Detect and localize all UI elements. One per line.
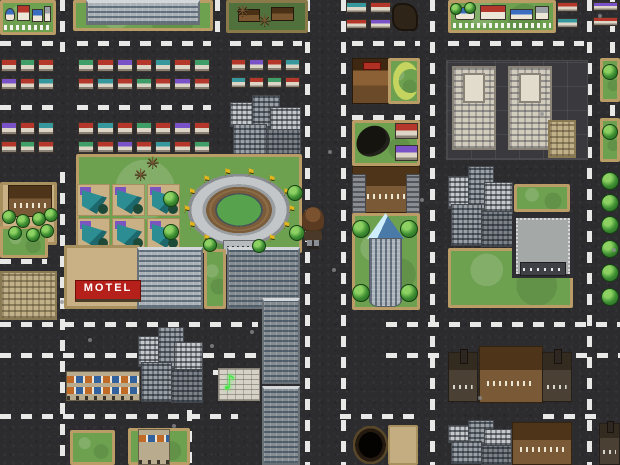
house	[97, 141, 113, 154]
city-cluster-east	[448, 166, 514, 248]
tree	[464, 2, 476, 14]
church-east	[542, 352, 572, 402]
city-building	[266, 129, 301, 156]
house	[78, 78, 94, 91]
road-speckle	[478, 396, 482, 400]
tree	[44, 208, 58, 222]
house	[174, 122, 190, 135]
awning-shops	[66, 371, 140, 401]
house	[97, 78, 113, 91]
house	[249, 59, 264, 71]
sand-patch	[388, 425, 418, 465]
house	[194, 141, 210, 154]
house	[194, 59, 210, 72]
house-row-tr3	[592, 0, 620, 30]
suburb-house-tile	[112, 184, 145, 216]
flag-icon: ⚑	[188, 221, 196, 230]
picket-fence	[4, 25, 52, 30]
dead-tree-icon: ✳	[146, 156, 159, 172]
tree	[602, 64, 618, 80]
village-house	[480, 5, 507, 20]
house	[231, 77, 246, 89]
office-lawn-strip	[204, 249, 226, 309]
twin-tower-west	[452, 66, 496, 150]
house	[346, 2, 367, 13]
house	[557, 18, 578, 28]
house	[117, 78, 133, 91]
pit-hole	[353, 426, 388, 464]
house	[174, 59, 190, 72]
manor-south-2	[512, 422, 572, 465]
tree	[601, 264, 619, 282]
house	[249, 77, 264, 89]
dead-tree-icon: ✳	[134, 168, 147, 184]
house	[155, 122, 171, 135]
motel-sign: MOTEL	[75, 280, 141, 302]
flag-icon: ⚑	[224, 168, 232, 177]
tree	[163, 224, 179, 240]
house	[1, 141, 17, 154]
house	[285, 77, 300, 89]
grass-patch-ne	[514, 184, 570, 212]
road-lane-marking	[60, 0, 65, 52]
house-row-1	[0, 57, 56, 94]
house-row-3	[230, 57, 302, 92]
church-edge	[599, 423, 620, 465]
road-lane-marking	[340, 414, 417, 419]
road-lane-marking	[386, 322, 620, 327]
tower-mid	[262, 298, 300, 384]
house	[155, 141, 171, 154]
road-lane-marking	[77, 41, 211, 46]
tree	[601, 288, 619, 306]
tree	[8, 226, 22, 240]
shop-south	[138, 429, 170, 465]
city-building	[481, 445, 512, 465]
house	[370, 2, 391, 13]
player-hair	[302, 207, 324, 233]
suburb-house-tile	[77, 184, 110, 216]
house	[346, 19, 367, 30]
road-lane-marking	[576, 353, 620, 358]
road-speckle	[60, 300, 64, 304]
apartments-left	[0, 271, 57, 320]
flag-icon: ⚑	[268, 234, 276, 243]
road-lane-marking	[448, 41, 584, 46]
twin-tower-east	[508, 66, 552, 150]
tree	[163, 191, 179, 207]
city-building	[171, 369, 203, 403]
road-lane-marking	[0, 322, 258, 327]
road-lane-marking	[0, 259, 47, 264]
house	[155, 78, 171, 91]
city-cluster-west	[138, 327, 204, 404]
office-building-top	[86, 0, 200, 25]
village-house	[32, 9, 43, 21]
house	[194, 122, 210, 135]
house	[38, 78, 54, 91]
player-character	[301, 207, 325, 249]
shrub	[133, 204, 143, 214]
city-cluster-south	[448, 420, 513, 465]
village-house	[44, 6, 51, 22]
tree	[40, 224, 54, 238]
tree	[252, 239, 266, 253]
house	[78, 141, 94, 154]
house-pair-red	[394, 121, 420, 165]
road-lane-marking	[0, 414, 238, 419]
grass-square-sw1	[70, 430, 115, 465]
tree	[601, 216, 619, 234]
road-lane-marking	[0, 41, 56, 46]
house	[267, 59, 282, 71]
road-speckle	[332, 268, 336, 272]
palace-hotel	[352, 166, 420, 213]
house	[285, 59, 300, 71]
house-row-2	[77, 57, 212, 94]
tree	[203, 238, 217, 252]
map-viewport[interactable]: MOTEL ⚑⚑⚑⚑⚑⚑⚑⚑⚑⚑⚑⚑⚑⚑♪✳✳✳✳	[0, 0, 620, 465]
house	[20, 122, 36, 135]
house	[78, 59, 94, 72]
house	[370, 19, 391, 30]
flag-icon: ⚑	[288, 205, 296, 214]
tree	[400, 284, 418, 302]
village-tile-topleft	[0, 0, 56, 35]
road-lane-marking	[60, 172, 65, 465]
tower-south	[262, 386, 300, 465]
tower-body	[369, 238, 402, 307]
village-house	[17, 5, 30, 21]
house	[38, 59, 54, 72]
flag-icon: ⚑	[268, 175, 276, 184]
house	[136, 78, 152, 91]
city-building	[141, 362, 173, 402]
house	[557, 2, 578, 12]
road-lane-marking	[203, 353, 262, 358]
motel-sign-text: MOTEL	[84, 282, 133, 294]
house	[20, 59, 36, 72]
church-west	[448, 352, 478, 402]
village-house	[5, 8, 15, 21]
house	[194, 78, 210, 91]
neon-sign: ♪	[223, 370, 236, 394]
house	[1, 78, 17, 91]
city-building	[233, 124, 268, 156]
house	[136, 59, 152, 72]
city-cluster-north	[230, 95, 302, 157]
inn-building	[352, 58, 390, 104]
dead-tree-icon: ✳	[258, 14, 271, 30]
city-building	[451, 204, 483, 247]
road-lane-marking	[341, 0, 346, 465]
road-speckle	[250, 330, 254, 334]
road-lane-marking	[386, 353, 447, 358]
house	[38, 141, 54, 154]
tree	[26, 228, 40, 242]
picket-fence	[453, 23, 551, 28]
house-row-5	[77, 120, 212, 157]
road-speckle	[420, 198, 424, 202]
neon-sign-building: ♪	[218, 368, 260, 401]
house	[593, 2, 618, 11]
tree	[601, 194, 619, 212]
tree	[352, 284, 370, 302]
tree	[352, 220, 370, 238]
dead-tree-icon: ✳	[236, 4, 249, 20]
house	[117, 59, 133, 72]
village-house	[535, 6, 549, 21]
road-speckle	[598, 14, 602, 18]
tree	[400, 220, 418, 238]
ruined-hut	[271, 7, 294, 21]
road-lane-marking	[0, 353, 137, 358]
tan-annex	[548, 120, 576, 158]
house	[231, 59, 246, 71]
house	[155, 59, 171, 72]
house	[20, 141, 36, 154]
office-center-west	[137, 247, 203, 309]
road-speckle	[210, 344, 214, 348]
road-speckle	[328, 150, 332, 154]
flag-icon: ⚑	[188, 188, 196, 197]
tower-pyramid-roof	[367, 213, 404, 239]
road-speckle	[172, 424, 176, 428]
flag-icon: ⚑	[203, 175, 211, 184]
city-building	[481, 211, 513, 247]
house	[38, 122, 54, 135]
road-lane-marking	[77, 105, 211, 110]
glass-tower	[367, 213, 404, 307]
flag-icon: ⚑	[183, 205, 191, 214]
house	[174, 141, 190, 154]
village-house	[510, 9, 532, 20]
road-speckle	[612, 248, 616, 252]
tree	[601, 240, 619, 258]
player-feet	[307, 246, 319, 249]
house	[1, 59, 17, 72]
house	[117, 122, 133, 135]
house	[97, 122, 113, 135]
house	[20, 78, 36, 91]
road-lane-marking	[215, 0, 220, 38]
road-lane-marking	[230, 41, 302, 46]
tree	[602, 124, 618, 140]
stadium: ⚑⚑⚑⚑⚑⚑⚑⚑⚑⚑⚑⚑⚑⚑	[178, 167, 300, 253]
shrub	[98, 204, 108, 214]
house	[174, 78, 190, 91]
road-lane-marking	[352, 41, 420, 46]
house-row-tr2	[556, 0, 580, 32]
house	[136, 122, 152, 135]
city-building	[451, 441, 482, 464]
manor-south	[479, 346, 543, 403]
tree	[287, 185, 303, 201]
road-lane-marking	[0, 105, 56, 110]
tree	[450, 3, 462, 15]
house	[1, 122, 17, 135]
flag-icon: ⚑	[247, 168, 255, 177]
house-row-tr1	[345, 0, 393, 33]
house	[117, 141, 133, 154]
house	[267, 77, 282, 89]
house	[136, 141, 152, 154]
road-lane-marking	[430, 0, 435, 465]
road-speckle	[540, 112, 544, 116]
tree	[601, 172, 619, 190]
walled-compound	[512, 214, 574, 278]
house	[97, 59, 113, 72]
house	[78, 122, 94, 135]
ruined-house	[392, 3, 418, 31]
crescent-lawn-mark	[393, 62, 419, 100]
house-row-4	[0, 120, 56, 157]
house	[593, 17, 618, 26]
house	[395, 145, 418, 161]
house	[395, 123, 418, 139]
tree	[2, 210, 16, 224]
road-speckle	[88, 338, 92, 342]
